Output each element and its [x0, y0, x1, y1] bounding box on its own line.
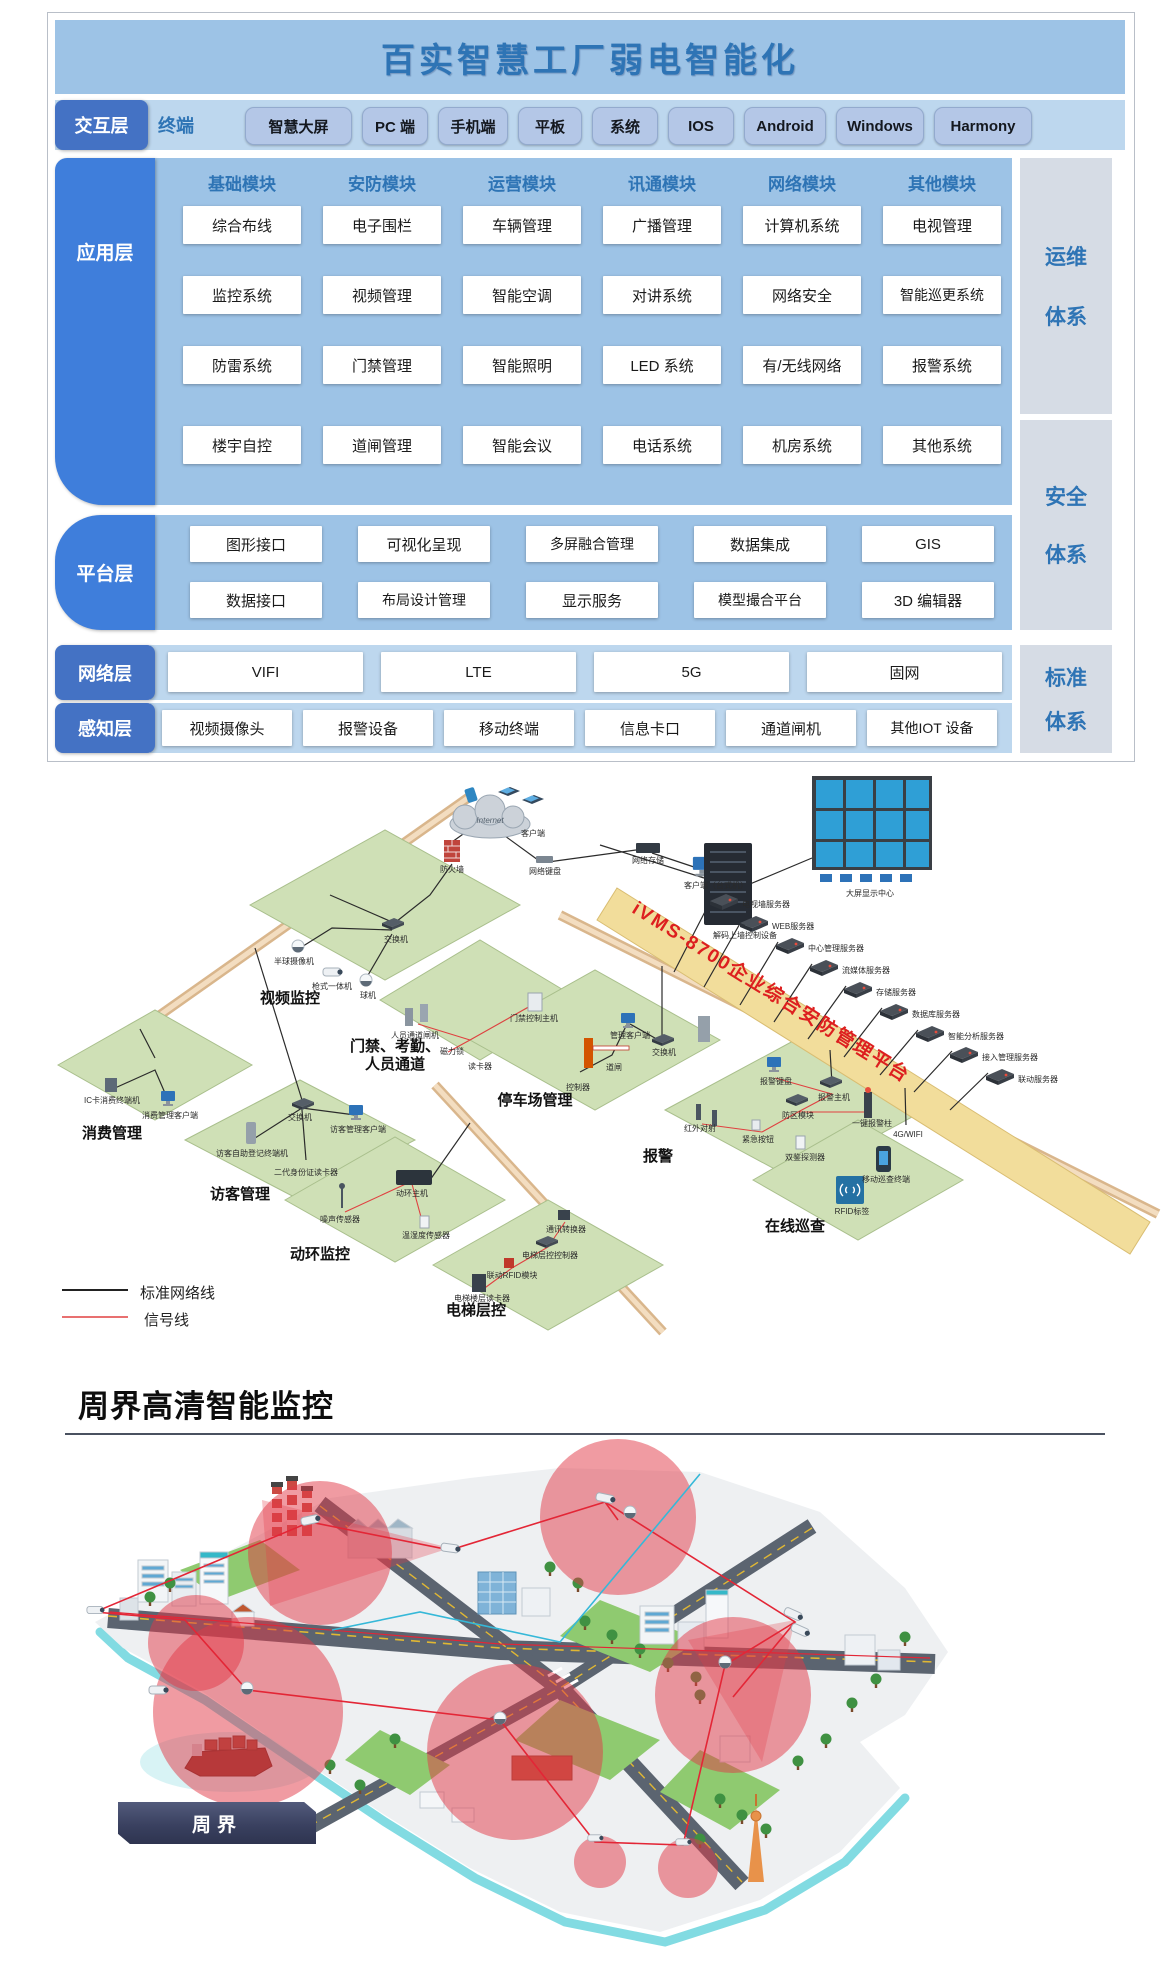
- legend-label-network: 标准网络线: [140, 1282, 215, 1303]
- device-label: 噪声传感器: [320, 1214, 360, 1225]
- page-title: 百实智慧工厂弱电智能化: [55, 20, 1125, 94]
- device-label: 人员通道闸机: [391, 1030, 439, 1041]
- app-cell: 防雷系统: [183, 346, 301, 384]
- laptop-icon: [498, 787, 520, 796]
- app-cell: 机房系统: [743, 426, 861, 464]
- platform-cell: 布局设计管理: [358, 582, 490, 618]
- tab-perception-layer: 感知层: [55, 703, 155, 753]
- legend-label-signal: 信号线: [144, 1309, 189, 1330]
- device-label: 道闸: [606, 1062, 622, 1073]
- device-label: 防火墙: [440, 864, 464, 875]
- ball-camera-icon: [360, 974, 372, 987]
- rfid-module-icon: [504, 1258, 514, 1268]
- comm-converter-icon: [558, 1210, 570, 1220]
- chip-pc: PC 端: [362, 107, 428, 145]
- tab-interaction-layer: 交互层: [55, 100, 148, 150]
- perimeter-heading: 周界高清智能监控: [78, 1381, 334, 1426]
- system-security-line2: 体系: [1045, 539, 1087, 569]
- device-label: 磁力锁: [440, 1046, 464, 1057]
- module-header: 讯通模块: [592, 170, 732, 195]
- perception-cell: 报警设备: [303, 710, 433, 746]
- zone-label-elevator: 电梯层控: [446, 1302, 506, 1320]
- app-cell: 计算机系统: [743, 206, 861, 244]
- chip-system: 系统: [592, 107, 658, 145]
- zone-label-patrol: 在线巡查: [765, 1218, 825, 1236]
- city-illustration: [87, 1439, 948, 1942]
- device-label: 客户端（台式机）: [684, 880, 748, 891]
- module-header: 安防模块: [312, 170, 452, 195]
- device-label: 网络键盘: [529, 866, 561, 877]
- network-cell: 固网: [807, 652, 1002, 692]
- app-cell: LED 系统: [603, 346, 721, 384]
- app-cell: 监控系统: [183, 276, 301, 314]
- tab-platform-layer: 平台层: [55, 515, 155, 630]
- network-cell: VIFI: [168, 652, 363, 692]
- app-cell: 电子围栏: [323, 206, 441, 244]
- device-label: 紧急按钮: [742, 1134, 774, 1145]
- device-label: 读卡器: [468, 1061, 492, 1072]
- perimeter-badge: 周界: [118, 1802, 316, 1844]
- bullet-camera-icon: [323, 968, 343, 976]
- chip-ios: IOS: [668, 107, 734, 145]
- platform-cell: 图形接口: [190, 526, 322, 562]
- visitor-kiosk-icon: [246, 1122, 256, 1144]
- platform-cell: 数据接口: [190, 582, 322, 618]
- perception-cell: 通道闸机: [726, 710, 856, 746]
- device-label: 通讯转换器: [546, 1224, 586, 1235]
- tab-network-layer: 网络层: [55, 645, 155, 700]
- server-label: 智能分析服务器: [948, 1031, 1004, 1042]
- device-label: RFID标签: [835, 1206, 870, 1217]
- rfid-tag-icon: [836, 1176, 864, 1204]
- chip-tablet: 平板: [518, 107, 582, 145]
- module-header: 其他模块: [872, 170, 1012, 195]
- app-cell: 车辆管理: [463, 206, 581, 244]
- device-label: 电梯层控控制器: [522, 1250, 578, 1261]
- terminal-label: 终端: [158, 100, 194, 150]
- platform-cell: 3D 编辑器: [862, 582, 994, 618]
- chip-android: Android: [744, 107, 826, 145]
- perception-cell: 移动终端: [444, 710, 574, 746]
- system-ops-line2: 体系: [1045, 301, 1087, 331]
- system-security: 安全 体系: [1020, 420, 1112, 630]
- access-controller-icon: [528, 993, 542, 1011]
- zone-label-video: 视频监控: [260, 990, 320, 1008]
- app-cell: 其他系统: [883, 426, 1001, 464]
- device-label: 二代身份证读卡器: [274, 1167, 338, 1178]
- chip-smart-screen: 智慧大屏: [245, 107, 352, 145]
- chip-mobile: 手机端: [438, 107, 508, 145]
- zone-label-visitor: 访客管理: [210, 1186, 270, 1204]
- device-label: 门禁控制主机: [510, 1013, 558, 1024]
- network-storage-icon: [636, 843, 660, 853]
- zone-label-env: 动环监控: [290, 1246, 350, 1264]
- device-label: 球机: [360, 990, 376, 1001]
- system-ops: 运维 体系: [1020, 158, 1112, 414]
- platform-cell: 显示服务: [526, 582, 658, 618]
- device-label: 网络存储: [632, 855, 664, 866]
- server-label: 中心管理服务器: [808, 943, 864, 954]
- device-label: 访客管理客户端: [330, 1124, 386, 1135]
- device-label: 交换机: [652, 1047, 676, 1058]
- app-cell: 报警系统: [883, 346, 1001, 384]
- perception-cell: 视频摄像头: [162, 710, 292, 746]
- server-label: 数据库服务器: [912, 1009, 960, 1020]
- device-label: 交换机: [288, 1112, 312, 1123]
- app-cell: 智能空调: [463, 276, 581, 314]
- server-label: 接入管理服务器: [982, 1052, 1038, 1063]
- app-cell: 电视管理: [883, 206, 1001, 244]
- system-security-line1: 安全: [1045, 481, 1087, 511]
- server-label: 联动服务器: [1018, 1074, 1058, 1085]
- network-keyboard-icon: [536, 856, 553, 863]
- chip-windows: Windows: [836, 107, 924, 145]
- server-label: 电视墙服务器: [742, 899, 790, 910]
- device-label: 双鉴探测器: [785, 1152, 825, 1163]
- device-label: 访客自助登记终端机: [216, 1148, 288, 1159]
- app-cell: 门禁管理: [323, 346, 441, 384]
- device-label: 报警键盘: [760, 1076, 792, 1087]
- platform-cell: 可视化呈现: [358, 526, 490, 562]
- module-header: 运营模块: [452, 170, 592, 195]
- app-cell: 广播管理: [603, 206, 721, 244]
- module-header: 网络模块: [732, 170, 872, 195]
- platform-cell: 模型撮合平台: [694, 582, 826, 618]
- device-label: 消费管理客户端: [142, 1110, 198, 1121]
- device-label: 动环主机: [396, 1188, 428, 1199]
- system-standard-line2: 体系: [1045, 706, 1087, 736]
- network-cell: LTE: [381, 652, 576, 692]
- firewall-icon: [444, 840, 460, 862]
- entry-kiosk-icon: [698, 1016, 710, 1042]
- device-label: 交换机: [384, 934, 408, 945]
- platform-cell: 多屏融合管理: [526, 526, 658, 562]
- device-label: 一键报警柱: [852, 1118, 892, 1129]
- app-cell: 网络安全: [743, 276, 861, 314]
- device-label: 枪式一体机: [312, 981, 352, 992]
- device-label: 联动RFID模块: [487, 1270, 538, 1281]
- heading-rule: [65, 1433, 1105, 1435]
- app-cell: 视频管理: [323, 276, 441, 314]
- device-label: 防区模块: [782, 1110, 814, 1121]
- dual-detector-icon: [796, 1136, 805, 1149]
- system-standard: 标准 体系: [1020, 645, 1112, 753]
- device-label: 控制器: [566, 1082, 590, 1093]
- device-label: IC卡消费终端机: [84, 1095, 140, 1106]
- device-label: 电梯楼层读卡器: [454, 1293, 510, 1304]
- device-label: 客户端: [521, 828, 545, 839]
- floor-reader-icon: [472, 1274, 486, 1292]
- server-label: WEB服务器: [772, 921, 814, 932]
- panic-button-icon: [752, 1120, 760, 1130]
- tab-application-layer: 应用层: [55, 158, 155, 505]
- device-label: 解码上墙控制设备: [713, 930, 777, 941]
- zone-label-parking: 停车场管理: [497, 1092, 572, 1110]
- perception-cell: 其他IOT 设备: [867, 710, 997, 746]
- module-header: 基础模块: [172, 170, 312, 195]
- device-label: 4G/WIFI: [893, 1130, 923, 1139]
- chip-harmony: Harmony: [934, 107, 1032, 145]
- system-ops-line1: 运维: [1045, 241, 1087, 271]
- env-host-icon: [396, 1170, 432, 1185]
- zone-label-access: 门禁、考勤、人员通道: [345, 1038, 445, 1074]
- app-cell: 道闸管理: [323, 426, 441, 464]
- device-label: 温湿度传感器: [402, 1230, 450, 1241]
- device-label: 红外对射: [684, 1123, 716, 1134]
- server-label: 流媒体服务器: [842, 965, 890, 976]
- patrol-phone-icon: [876, 1146, 891, 1172]
- page: { "title": "百实智慧工厂弱电智能化", "interaction":…: [0, 0, 1168, 1964]
- app-cell: 智能会议: [463, 426, 581, 464]
- app-cell: 有/无线网络: [743, 346, 861, 384]
- platform-cell: GIS: [862, 526, 994, 562]
- platform-cell: 数据集成: [694, 526, 826, 562]
- network-cell: 5G: [594, 652, 789, 692]
- device-label: 报警主机: [818, 1092, 850, 1103]
- device-label: 大屏显示中心: [846, 888, 894, 899]
- app-cell: 楼宇自控: [183, 426, 301, 464]
- app-cell: 电话系统: [603, 426, 721, 464]
- zone-label-consume: 消费管理: [82, 1125, 142, 1143]
- pos-terminal-icon: [105, 1078, 117, 1092]
- internet-label: Internet: [476, 816, 503, 825]
- laptop-icon: [522, 795, 544, 804]
- app-cell: 智能巡更系统: [883, 276, 1001, 314]
- app-cell: 对讲系统: [603, 276, 721, 314]
- device-label: 半球摄像机: [274, 956, 314, 967]
- zone-label-alarm: 报警: [643, 1148, 673, 1166]
- app-cell: 综合布线: [183, 206, 301, 244]
- device-label: 管理客户端: [610, 1030, 650, 1041]
- app-cell: 智能照明: [463, 346, 581, 384]
- system-standard-line1: 标准: [1045, 662, 1087, 692]
- server-label: 存储服务器: [876, 987, 916, 998]
- perception-cell: 信息卡口: [585, 710, 715, 746]
- dome-camera-icon: [292, 940, 304, 953]
- device-label: 移动巡查终端: [862, 1174, 910, 1185]
- temp-humidity-sensor-icon: [420, 1216, 429, 1228]
- video-wall-icon: [812, 776, 932, 882]
